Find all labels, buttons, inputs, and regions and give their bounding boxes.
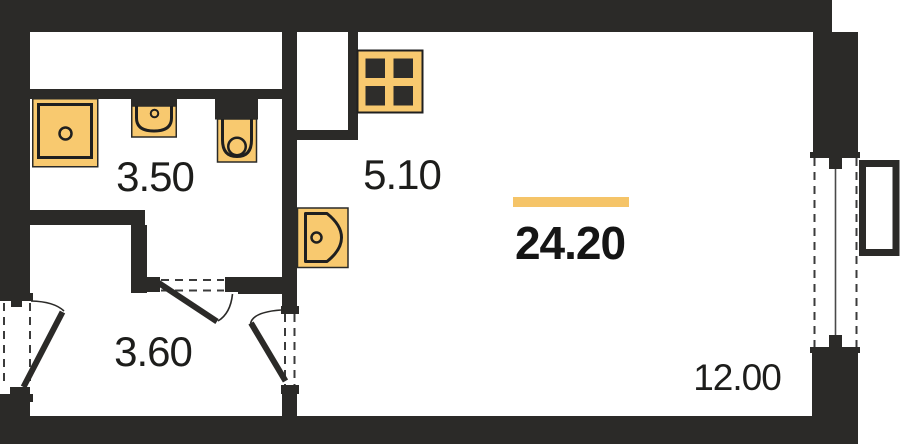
toilet-tank (215, 97, 258, 120)
wall-segment (131, 225, 147, 293)
wall-segment (10, 387, 30, 394)
wall-segment (0, 32, 30, 293)
washbasin-icon (131, 98, 177, 137)
stove-burner (394, 86, 414, 106)
wall-segment (282, 394, 297, 416)
room-area-label-bathroom: 3.50 (116, 153, 194, 200)
wall-segment (281, 306, 299, 314)
shower-drain (60, 128, 72, 140)
wall-segment (813, 32, 858, 152)
wall-segment (810, 347, 860, 353)
room-area-label-kitchen: 5.10 (363, 151, 441, 198)
door-leaf (158, 283, 217, 322)
wall-segment (0, 416, 812, 444)
wall-segment (0, 394, 33, 402)
wall-segment (0, 0, 832, 32)
toilet-drain (228, 138, 246, 156)
entrance-door (4, 301, 64, 387)
door-swing-arc (218, 294, 233, 321)
door-leaf (251, 323, 286, 381)
shower-icon (33, 99, 98, 167)
stove-burner (366, 59, 386, 79)
kitchen-sink-icon (298, 208, 349, 268)
total-area-accent-bar (513, 197, 629, 207)
door-swing-arc (31, 301, 64, 311)
kitchen-sink-faucet (312, 233, 322, 243)
room-area-label-living: 12.00 (693, 357, 781, 398)
stove-burner (394, 59, 414, 79)
washbasin-faucet (151, 110, 159, 118)
stove-burner (366, 86, 386, 106)
wall-segment (281, 385, 299, 394)
balcony-outline (863, 164, 897, 253)
floor-plan: 3.50 5.10 3.60 12.00 24.20 (0, 0, 900, 448)
wall-segment (812, 353, 858, 444)
wall-segment (11, 301, 22, 307)
balcony-window (815, 157, 857, 347)
wall-segment (225, 277, 238, 292)
wall-segment (282, 32, 297, 307)
wall-segment (30, 210, 145, 225)
bathroom-door (158, 280, 233, 322)
door-swing-arc (251, 310, 282, 324)
wall-segment (297, 130, 358, 140)
stove-icon (358, 51, 423, 113)
washbasin-backsplash (131, 98, 177, 107)
living-room-door (251, 310, 295, 385)
wall-segment (238, 277, 283, 294)
window-post (829, 335, 842, 347)
room-area-label-hallway: 3.60 (114, 328, 192, 375)
wall-segment (0, 293, 33, 301)
floor-plan-drawing: 3.50 5.10 3.60 12.00 24.20 (0, 0, 900, 448)
toilet-icon (215, 97, 258, 162)
window-post (829, 157, 842, 169)
total-area-label: 24.20 (515, 217, 625, 269)
